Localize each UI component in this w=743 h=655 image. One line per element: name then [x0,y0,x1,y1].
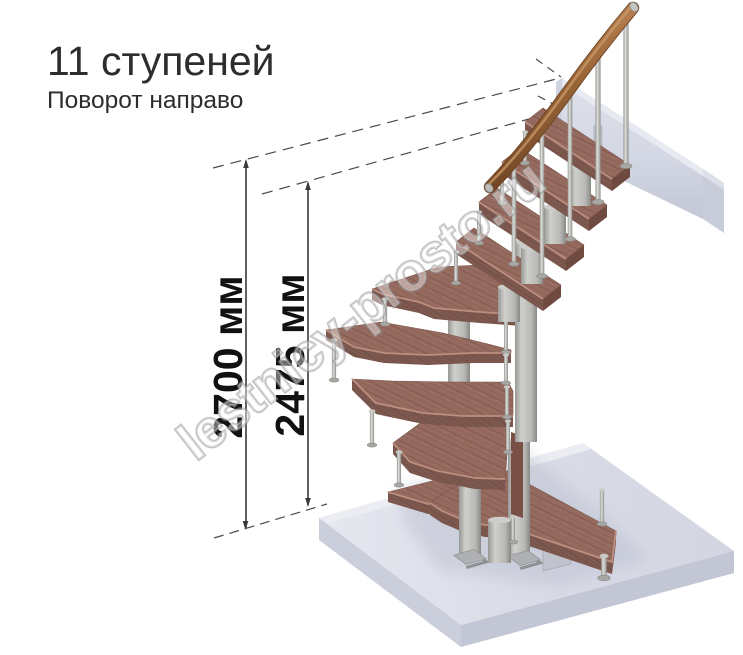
svg-text:11 ступеней: 11 ступеней [47,38,275,84]
svg-text:Поворот направо: Поворот направо [47,87,243,114]
